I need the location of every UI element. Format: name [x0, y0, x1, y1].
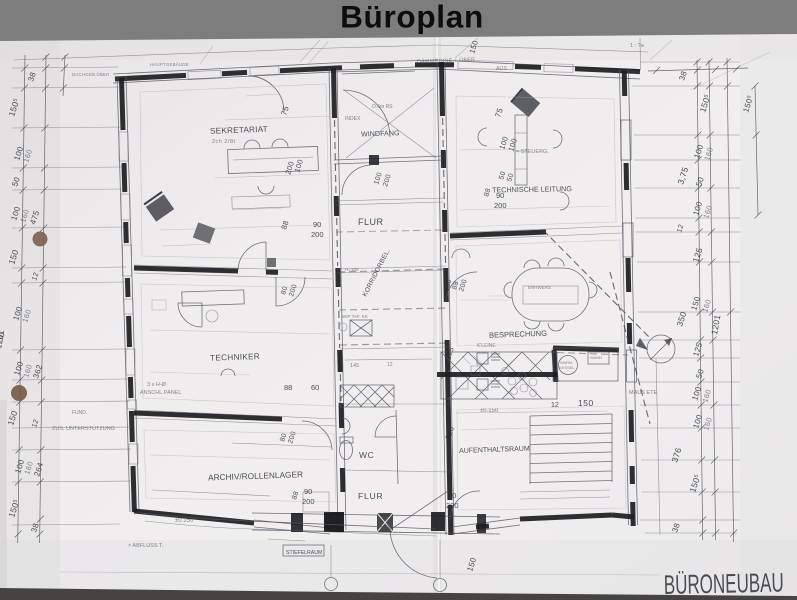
- svg-text:3 x H-Ø: 3 x H-Ø: [147, 382, 167, 388]
- svg-text:K'LEINE: K'LEINE: [477, 343, 496, 349]
- svg-text:200: 200: [446, 501, 459, 510]
- svg-text:TECHNIKER: TECHNIKER: [210, 352, 260, 363]
- svg-text:145: 145: [350, 363, 359, 369]
- svg-text:O.6m RS: O.6m RS: [372, 104, 393, 110]
- svg-text:H=180: H=180: [345, 267, 359, 272]
- svg-text:× ABFLUSS T.: × ABFLUSS T.: [128, 543, 164, 549]
- svg-text:DACHGEB.ÜBER: DACHGEB.ÜBER: [72, 72, 110, 77]
- svg-text:±0.150: ±0.150: [175, 518, 194, 524]
- svg-text:FUND.: FUND.: [72, 410, 87, 416]
- svg-text:KESSEL: KESSEL: [559, 365, 575, 370]
- svg-text:WIP TAF. KK: WIP TAF. KK: [342, 314, 368, 319]
- svg-text:FLUR: FLUR: [358, 217, 384, 227]
- svg-text:90: 90: [496, 191, 504, 200]
- svg-text:60: 60: [311, 383, 319, 392]
- svg-text:2ch 2/8t: 2ch 2/8t: [212, 139, 236, 145]
- svg-text:AUS: AUS: [496, 66, 507, 72]
- svg-text:FLUR: FLUR: [358, 491, 383, 501]
- svg-text:HAUPTGEBÄUDE: HAUPTGEBÄUDE: [150, 62, 189, 67]
- svg-text:90: 90: [448, 491, 456, 500]
- svg-text:Büroplan: Büroplan: [340, 0, 484, 35]
- svg-text:ZUS. UNTERSTÜTZUNG: ZUS. UNTERSTÜTZUNG: [52, 425, 115, 432]
- svg-text:MAUS ETE: MAUS ETE: [629, 390, 657, 396]
- svg-text:STIEFELRAUM: STIEFELRAUM: [286, 550, 322, 556]
- svg-text:ANSCHL.PANEL: ANSCHL.PANEL: [140, 390, 181, 396]
- svg-text:200: 200: [311, 230, 324, 239]
- svg-text:90: 90: [313, 220, 321, 229]
- svg-text:WC: WC: [359, 450, 374, 460]
- svg-text:BÜRONEUBAU: BÜRONEUBAU: [663, 568, 784, 600]
- svg-text:× STEUERG.: × STEUERG.: [516, 149, 549, 155]
- svg-text:12: 12: [387, 362, 393, 368]
- svg-text:ERHWERS: ERHWERS: [528, 285, 551, 290]
- svg-text:90: 90: [304, 487, 312, 496]
- svg-text:88: 88: [284, 383, 292, 392]
- svg-text:WINDFANG: WINDFANG: [361, 130, 400, 138]
- svg-text:WAND: WAND: [590, 355, 602, 360]
- svg-text:INDEX: INDEX: [345, 116, 361, 122]
- svg-text:1 : ?a: 1 : ?a: [630, 43, 645, 49]
